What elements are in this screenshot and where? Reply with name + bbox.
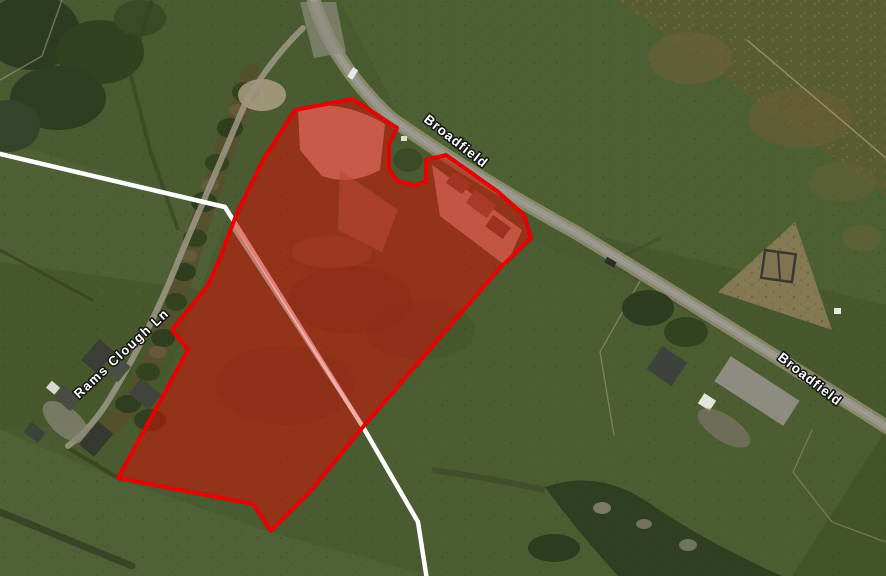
satellite-map-canvas[interactable]: Broadfield Broadfield Rams Clough Ln (0, 0, 886, 576)
scrub-patch (808, 162, 876, 202)
notch-trees (393, 148, 423, 172)
scrub-patch (842, 225, 882, 251)
map-viewport[interactable]: Broadfield Broadfield Rams Clough Ln (0, 0, 886, 576)
roadside-marker (401, 136, 407, 141)
